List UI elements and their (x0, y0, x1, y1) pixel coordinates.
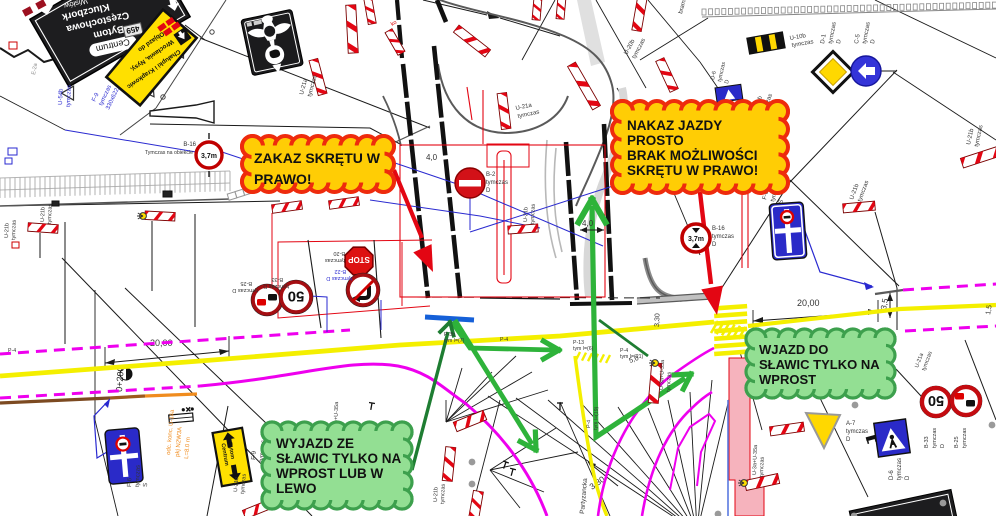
svg-text:PRAWO!: PRAWO! (254, 171, 312, 187)
svg-text:STOP: STOP (348, 255, 370, 264)
svg-text:NAKAZ JAZDY: NAKAZ JAZDY (627, 118, 722, 133)
svg-text:B-2: B-2 (486, 172, 496, 178)
svg-text:tymczas: tymczas (135, 465, 142, 487)
svg-text:U-21b: U-21b (40, 207, 47, 222)
svg-text:U-54b: U-54b (58, 88, 65, 105)
svg-text:SKRĘTU W PRAWO!: SKRĘTU W PRAWO! (627, 163, 758, 178)
svg-text:tym l=(21): tym l=(21) (620, 354, 643, 360)
svg-text:SŁAWIC TYLKO NA: SŁAWIC TYLKO NA (276, 451, 401, 466)
svg-text:B-16: B-16 (183, 142, 196, 148)
svg-text:D: D (712, 242, 717, 248)
svg-text:tymczas: tymczas (712, 234, 734, 240)
svg-text:P-4: P-4 (8, 348, 16, 354)
svg-text:U-3a+U-35a: U-3a+U-35a (659, 359, 666, 390)
svg-text:D: D (940, 444, 946, 448)
svg-text:D: D (846, 437, 851, 443)
svg-text:tym l=(19): tym l=(19) (593, 406, 600, 430)
svg-text:50: 50 (928, 392, 944, 408)
svg-text:WPROST LUB W: WPROST LUB W (276, 466, 383, 481)
svg-text:P-4: P-4 (586, 420, 592, 428)
svg-text:P-4: P-4 (500, 337, 508, 343)
svg-text:WYJAZD ZE: WYJAZD ZE (276, 436, 354, 451)
svg-text:SŁAWIC TYLKO NA: SŁAWIC TYLKO NA (759, 357, 880, 372)
svg-text:Tymczas na obiekcie: Tymczas na obiekcie (145, 150, 193, 156)
svg-text:LEWO: LEWO (276, 481, 317, 496)
svg-text:U-21b: U-21b (433, 487, 440, 502)
svg-text:3,7m: 3,7m (201, 153, 217, 160)
svg-text:4,0: 4,0 (426, 153, 438, 162)
svg-text:S: S (143, 483, 149, 487)
svg-text:B-25: B-25 (240, 280, 252, 286)
svg-text:4,0: 4,0 (582, 219, 594, 228)
svg-text:tymczas: tymczas (11, 219, 18, 240)
svg-text:D: D (486, 188, 491, 194)
svg-text:B-20: B-20 (333, 250, 345, 256)
svg-text:ZAKAZ SKRĘTU W: ZAKAZ SKRĘTU W (254, 150, 381, 166)
svg-text:tymczas: tymczas (47, 203, 54, 224)
svg-text:BRAK MOŻLIWOŚCI: BRAK MOŻLIWOŚCI (627, 148, 758, 163)
svg-text:tymczas: tymczas (846, 429, 868, 435)
svg-text:tymczas: tymczas (897, 458, 903, 480)
svg-text:20,00: 20,00 (797, 298, 820, 308)
svg-text:tymczas: tymczas (440, 483, 447, 504)
svg-text:F-9: F-9 (251, 450, 258, 460)
svg-text:B-16: B-16 (712, 226, 725, 232)
svg-text:tym l=(7): tym l=(7) (444, 338, 465, 344)
svg-text:B-22: B-22 (334, 268, 346, 274)
svg-text:tymczas D: tymczas D (263, 283, 289, 289)
svg-text:WPROST: WPROST (759, 372, 816, 387)
svg-text:3,7m: 3,7m (688, 236, 704, 243)
svg-text:D-6: D-6 (889, 470, 895, 480)
svg-text:WJAZD DO: WJAZD DO (759, 342, 828, 357)
svg-text:tymczas D: tymczas D (326, 275, 352, 281)
svg-text:tymczas: tymczas (932, 428, 938, 448)
svg-text:U-21b: U-21b (523, 207, 530, 222)
svg-text:tymczas: tymczas (666, 371, 673, 392)
svg-text:PROSTO: PROSTO (627, 133, 684, 148)
svg-text:tymczas: tymczas (530, 203, 537, 224)
svg-text:tym l=(6): tym l=(6) (573, 346, 594, 352)
svg-text:tymczas: tymczas (486, 180, 508, 186)
svg-text:B-33: B-33 (924, 436, 930, 448)
svg-text:B-33: B-33 (271, 276, 283, 282)
svg-text:tymczas: tymczas (962, 428, 968, 448)
svg-text:tymczas: tymczas (325, 257, 345, 263)
svg-text:U-21b: U-21b (4, 223, 11, 238)
svg-text:D: D (905, 475, 911, 480)
svg-text:50: 50 (288, 288, 305, 305)
svg-text:tymczas: tymczas (759, 456, 766, 477)
svg-text:F-6: F-6 (127, 477, 133, 487)
svg-text:B-25: B-25 (954, 436, 960, 448)
svg-text:A-7: A-7 (846, 421, 856, 427)
svg-text:tymczas: tymczas (66, 85, 73, 107)
svg-text:3,30: 3,30 (654, 313, 661, 327)
svg-text:U-3a+U-35a: U-3a+U-35a (752, 444, 759, 475)
svg-text:tymczas D: tymczas D (232, 287, 258, 293)
